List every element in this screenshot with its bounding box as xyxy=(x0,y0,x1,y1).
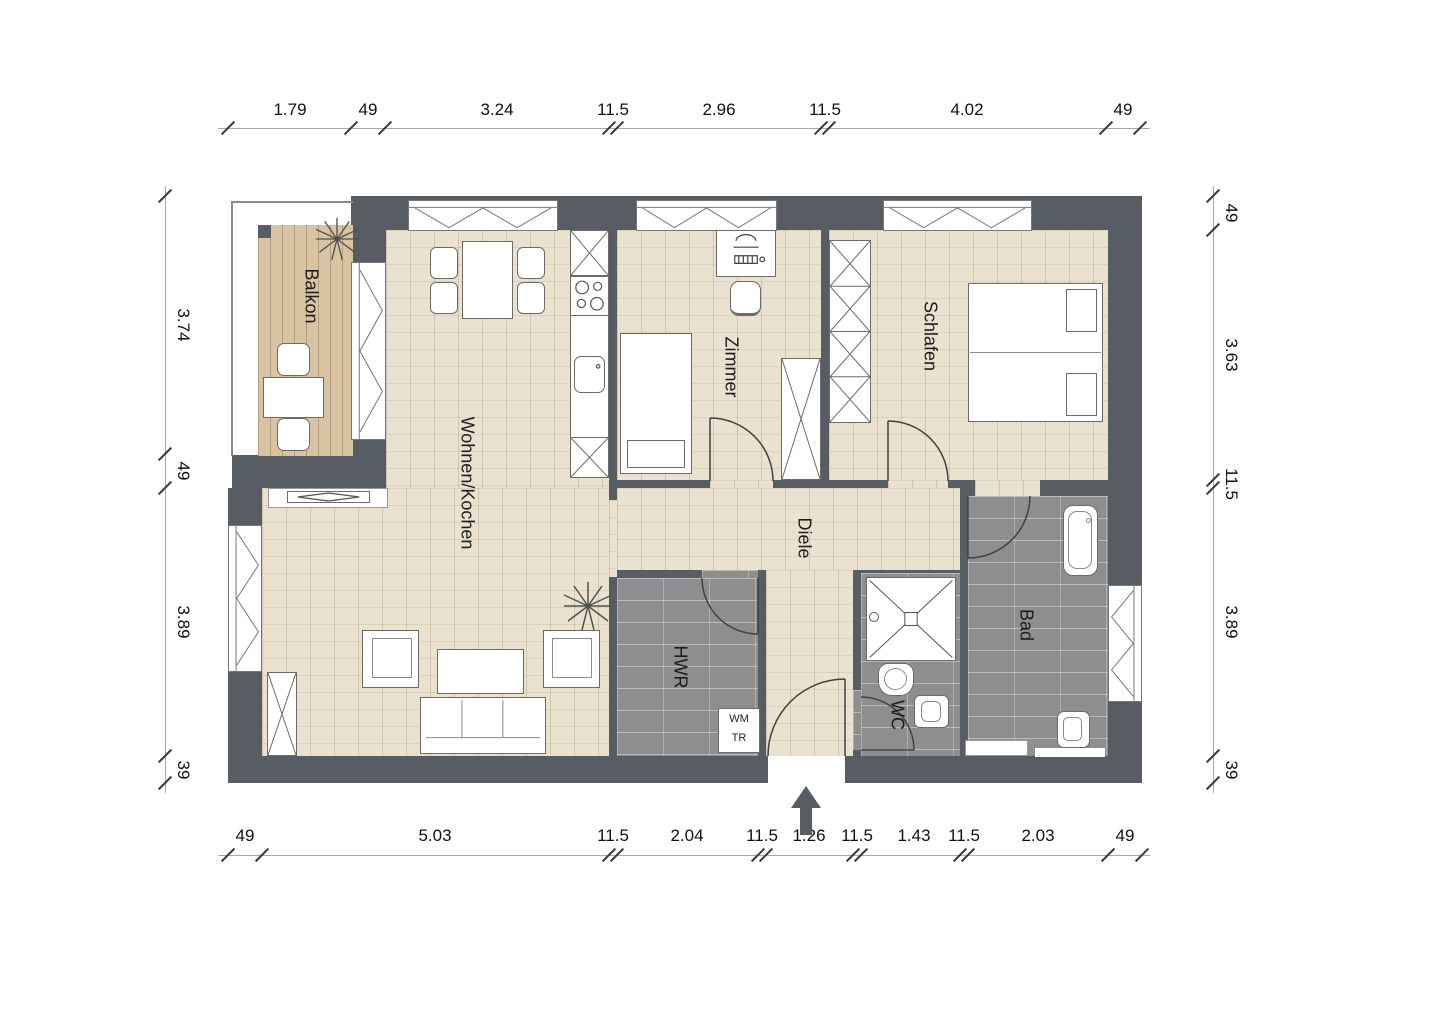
balcony-door xyxy=(351,262,386,440)
dimension-label: 11.5 xyxy=(746,826,778,846)
toilet-bowl xyxy=(1063,717,1082,741)
armchair-seat xyxy=(372,638,412,678)
window-casement-icon xyxy=(1109,586,1141,701)
window xyxy=(636,200,777,231)
wall xyxy=(821,230,829,480)
radiator xyxy=(287,491,370,503)
dimension-label: 49 xyxy=(359,100,378,120)
dimension-label: 11.5 xyxy=(597,100,629,120)
basin-bowl xyxy=(884,668,907,690)
dimension-label: 3.63 xyxy=(1221,338,1241,371)
cabinet-cross-icon xyxy=(268,673,296,755)
window xyxy=(228,525,262,672)
wall xyxy=(228,756,768,783)
balcony-chair xyxy=(277,418,310,451)
dimension-label: 1.43 xyxy=(897,826,930,846)
dimension-label: 39 xyxy=(1221,761,1241,780)
dining-table xyxy=(462,241,513,319)
drain-icon xyxy=(1086,518,1091,523)
room-label-wc: WC xyxy=(887,700,908,730)
wall xyxy=(773,480,888,488)
room-label-diele: Diele xyxy=(794,517,815,558)
wardrobe xyxy=(829,240,871,423)
dimension-label: 1.79 xyxy=(273,100,306,120)
stove-burners-icon xyxy=(571,277,608,315)
entrance-arrow-icon xyxy=(791,786,821,808)
radiator-niche xyxy=(965,740,1028,756)
wall xyxy=(853,750,861,756)
dimension-label: 3.89 xyxy=(173,605,193,638)
balcony-railing xyxy=(231,201,353,203)
wall xyxy=(609,480,710,488)
wardrobe xyxy=(781,358,821,480)
window xyxy=(1108,585,1142,702)
dimension-label: 11.5 xyxy=(597,826,629,846)
dimension-line-top xyxy=(218,128,1150,129)
wall xyxy=(845,756,1142,783)
balcony-post xyxy=(258,225,271,238)
hallway-floor xyxy=(617,488,960,570)
window-casement-icon xyxy=(229,526,261,671)
dimension-label: 49 xyxy=(1114,100,1133,120)
dimension-label: 4.02 xyxy=(950,100,983,120)
wall xyxy=(853,565,861,690)
washer-dryer: WM TR xyxy=(718,708,760,753)
wall xyxy=(1040,480,1108,496)
entrance-opening xyxy=(768,756,845,783)
dimension-label: 2.04 xyxy=(670,826,703,846)
cabinet-cross-icon xyxy=(782,359,820,479)
dining-chair xyxy=(430,282,458,314)
washing-machine-label: WM xyxy=(719,711,759,729)
window-casement-icon xyxy=(352,263,385,439)
computer-icon xyxy=(717,231,775,276)
wall xyxy=(228,488,262,525)
dimension-label: 11.5 xyxy=(809,100,841,120)
wardrobe-cross-icon xyxy=(830,241,870,422)
cabinet-cross-icon xyxy=(571,438,608,477)
window-casement-icon xyxy=(884,201,1031,230)
dimension-line-right xyxy=(1213,186,1214,793)
room-opening xyxy=(609,500,617,577)
window xyxy=(883,200,1032,231)
wall xyxy=(609,230,617,500)
dimension-line-left xyxy=(165,186,166,793)
door-opening xyxy=(702,570,758,578)
shower-tray-icon xyxy=(867,578,955,660)
faucet-icon xyxy=(575,357,604,392)
door-opening xyxy=(888,480,948,488)
kitchen-cabinet xyxy=(570,230,609,276)
sofa-cushions-icon xyxy=(421,698,545,753)
kitchen-sink xyxy=(574,356,605,393)
hallway-floor xyxy=(766,570,853,756)
room-label-zimmer: Zimmer xyxy=(721,337,742,398)
shower xyxy=(866,577,956,661)
door-opening xyxy=(975,480,1040,496)
cabinet xyxy=(267,672,297,756)
dimension-label: 49 xyxy=(173,462,193,481)
desk xyxy=(716,230,776,277)
wall xyxy=(960,488,968,756)
dimension-label: 3.74 xyxy=(173,308,193,341)
plant-icon xyxy=(563,581,613,635)
radiator-symbol xyxy=(288,492,369,502)
entrance-arrow-stem xyxy=(800,807,812,835)
dimension-label: 11.5 xyxy=(948,826,980,846)
room-label-bad: Bad xyxy=(1016,609,1037,641)
window-casement-icon xyxy=(637,201,776,230)
toilet-bowl xyxy=(921,701,941,722)
armchair-seat xyxy=(552,638,592,678)
dimension-line-bottom xyxy=(218,855,1150,856)
shower-head-icon xyxy=(869,612,879,622)
dimension-label: 49 xyxy=(1116,826,1135,846)
sofa xyxy=(420,697,546,754)
dryer-label: TR xyxy=(719,730,759,748)
balcony-railing xyxy=(231,201,233,456)
plant-icon xyxy=(315,217,359,261)
washbasin xyxy=(878,663,914,696)
wall xyxy=(232,455,386,488)
balcony-table xyxy=(263,377,324,418)
dimension-label: 49 xyxy=(236,826,255,846)
wall xyxy=(617,570,702,578)
wall-niche xyxy=(1035,748,1105,757)
plant-icon xyxy=(563,581,613,631)
balcony-chair xyxy=(277,343,310,376)
washbasin xyxy=(1063,505,1098,576)
armchair xyxy=(362,630,419,688)
door-opening xyxy=(710,480,773,488)
dimension-label: 39 xyxy=(173,761,193,780)
dimension-label: 3.24 xyxy=(480,100,513,120)
window-casement-icon xyxy=(409,201,557,230)
coffee-table xyxy=(437,649,524,694)
dimension-label: 11.5 xyxy=(1221,468,1241,500)
bed-pillow xyxy=(1066,289,1097,332)
dimension-label: 11.5 xyxy=(841,826,873,846)
wall xyxy=(228,672,262,783)
door-opening xyxy=(853,690,861,750)
bed-pillow xyxy=(627,440,685,468)
dimension-label: 2.96 xyxy=(702,100,735,120)
room-label-balkon: Balkon xyxy=(301,268,322,323)
armchair xyxy=(543,630,600,688)
window xyxy=(408,200,558,231)
kitchen-cabinet xyxy=(570,437,609,478)
stove xyxy=(570,276,609,316)
room-label-hwr: HWR xyxy=(670,646,691,689)
floor-plan: 1.79 49 3.24 11.5 2.96 11.5 4.02 49 49 5… xyxy=(0,0,1440,1015)
dimension-label: 5.03 xyxy=(418,826,451,846)
dining-chair xyxy=(430,247,458,279)
dimension-label: 3.89 xyxy=(1221,605,1241,638)
dining-chair xyxy=(517,247,545,279)
cabinet-cross-icon xyxy=(571,231,608,275)
room-label-schlafen: Schlafen xyxy=(920,301,941,371)
bed-divider xyxy=(970,352,1101,353)
toilet xyxy=(914,695,949,728)
desk-chair xyxy=(730,281,761,316)
toilet xyxy=(1057,711,1090,748)
bed-pillow xyxy=(1066,373,1097,416)
plant-icon xyxy=(315,217,359,265)
dining-chair xyxy=(517,282,545,314)
wall xyxy=(1108,230,1142,585)
room-label-wohnen-kochen: Wohnen/Kochen xyxy=(457,417,478,550)
dimension-label: 2.03 xyxy=(1021,826,1054,846)
dimension-label: 49 xyxy=(1221,204,1241,223)
